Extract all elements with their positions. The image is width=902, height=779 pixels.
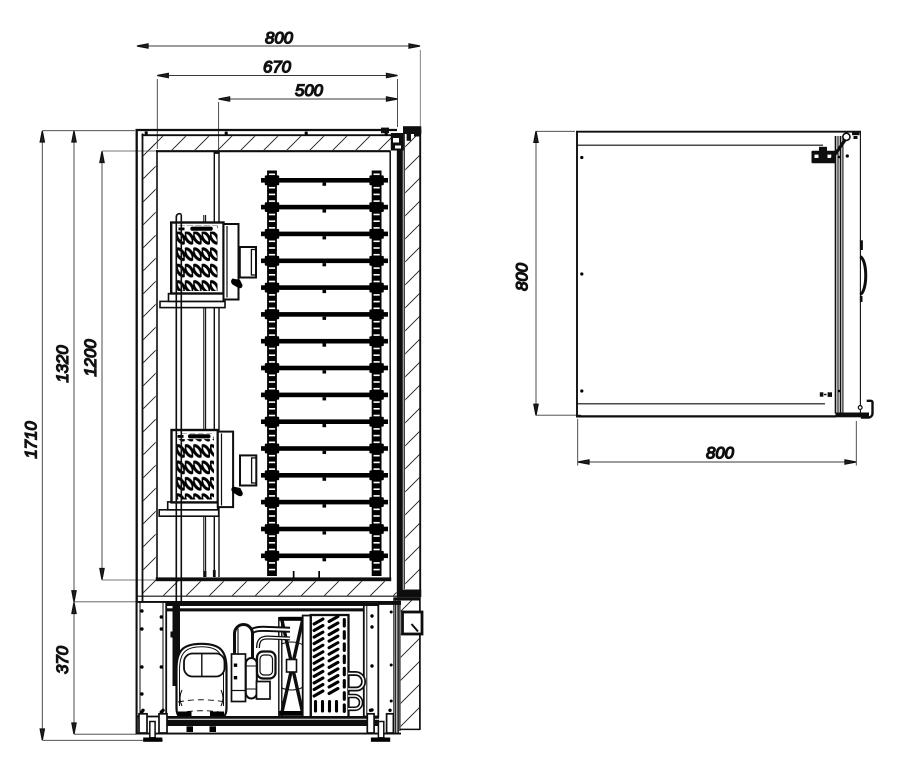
svg-text:800: 800: [706, 444, 735, 463]
svg-text:500: 500: [295, 81, 324, 100]
svg-text:800: 800: [265, 29, 294, 48]
svg-text:1710: 1710: [22, 421, 41, 459]
svg-text:670: 670: [263, 58, 292, 77]
svg-text:1200: 1200: [81, 339, 100, 377]
svg-text:370: 370: [53, 645, 72, 674]
svg-text:800: 800: [513, 262, 532, 291]
svg-text:1320: 1320: [53, 345, 72, 383]
